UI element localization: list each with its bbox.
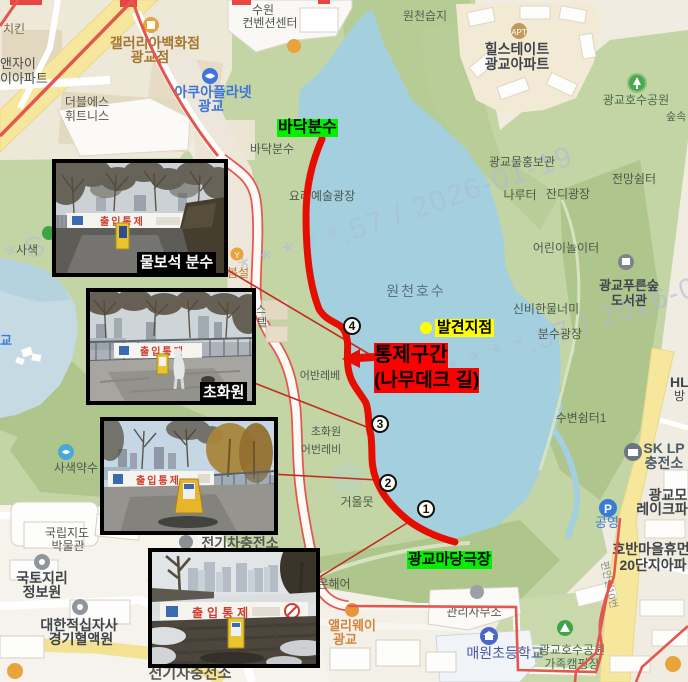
svg-text:사색약수: 사색약수 [54,460,98,475]
svg-text:숲속: 숲속 [666,110,686,123]
svg-text:SK LP: SK LP [643,440,684,456]
svg-text:분수광장: 분수광장 [538,327,582,341]
svg-text:광교아파트: 광교아파트 [485,56,550,72]
svg-text:스: 스 [256,303,266,316]
svg-text:원천습지: 원천습지 [403,8,447,23]
svg-text:호반마을휴먼: 호반마을휴먼 [612,541,688,557]
svg-text:거울못: 거울못 [340,495,373,509]
svg-text:원천호수: 원천호수 [386,283,446,299]
svg-text:나루터: 나루터 [503,188,536,202]
svg-text:Y: Y [234,251,240,260]
svg-text:P: P [604,502,612,516]
svg-text:충전소: 충전소 [645,455,684,471]
svg-text:도서관: 도서관 [611,293,647,308]
svg-text:HL: HL [670,374,688,390]
svg-text:바닥분수: 바닥분수 [250,142,294,156]
svg-text:정보원: 정보원 [23,584,62,600]
svg-text:전망쉼터: 전망쉼터 [612,172,656,186]
svg-text:휘트니스: 휘트니스 [65,109,109,123]
svg-text:사색: 사색 [16,243,38,257]
svg-text:수원: 수원 [252,3,274,17]
svg-text:컨벤션센터: 컨벤션센터 [242,16,297,30]
svg-text:어번레비: 어번레비 [301,443,341,456]
svg-text:힐스테이트: 힐스테이트 [485,41,550,57]
svg-text:봄설: 봄설 [227,266,249,280]
svg-text:요리예술광장: 요리예술광장 [289,189,355,203]
svg-text:광교푸른숲: 광교푸른숲 [599,278,659,293]
svg-text:광교물홍보관: 광교물홍보관 [489,155,555,169]
svg-text:광교점: 광교점 [131,49,170,65]
svg-text:앤자이: 앤자이 [0,56,36,71]
svg-text:치킨: 치킨 [3,22,25,36]
svg-text:매원초등학교: 매원초등학교 [466,645,543,661]
svg-text:가족캠핑장: 가족캠핑장 [544,657,599,671]
svg-text:국립지도: 국립지도 [45,526,89,540]
svg-text:광교호수공원: 광교호수공원 [603,93,669,107]
svg-text:어반레베: 어반레베 [300,369,340,382]
svg-text:박물관: 박물관 [51,539,84,553]
svg-text:텔: 텔 [257,316,267,329]
svg-text:경기혈액원: 경기혈액원 [49,631,113,647]
svg-text:이아파트: 이아파트 [0,71,48,86]
svg-text:앨리웨이: 앨리웨이 [328,618,376,633]
svg-text:신비한물너미: 신비한물너미 [513,302,579,316]
svg-text:어린이놀이터: 어린이놀이터 [533,241,599,255]
svg-text:출입통제: 출입통제 [136,474,181,487]
svg-text:레이크파: 레이크파 [636,501,688,517]
svg-text:광교: 광교 [333,632,357,647]
svg-text:초화원: 초화원 [311,425,341,438]
svg-text:20단지아파: 20단지아파 [619,557,686,573]
svg-text:방: 방 [674,389,685,403]
svg-text:공영: 공영 [595,515,619,530]
svg-text:APT: APT [511,28,527,37]
svg-text:교: 교 [0,333,12,348]
svg-text:은해어: 은해어 [317,577,350,591]
svg-text:잔디광장: 잔디광장 [546,187,590,201]
svg-text:광교: 광교 [198,98,224,114]
svg-text:더블에스: 더블에스 [65,95,109,109]
svg-text:수변쉼터1: 수변쉼터1 [556,411,607,425]
